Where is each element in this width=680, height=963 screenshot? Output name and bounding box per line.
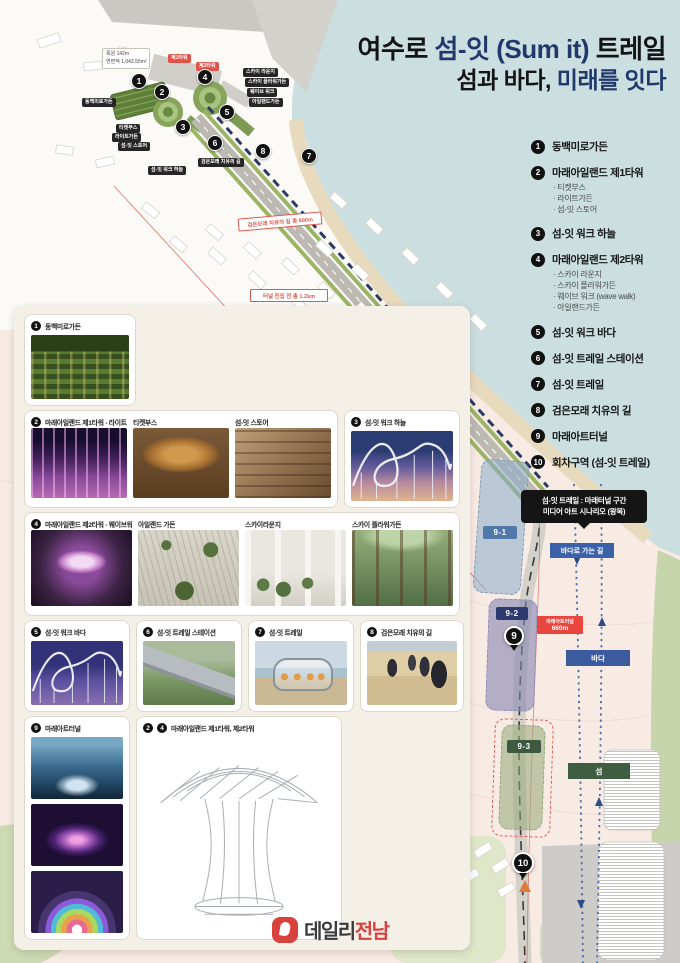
island-label: 섬 — [568, 763, 630, 779]
map-marker-1: 1 — [131, 73, 147, 89]
map-marker-5: 5 — [219, 104, 235, 120]
legend-item-9: 9마래아트터널 — [531, 429, 677, 444]
publisher-name-2: 전남 — [355, 921, 389, 943]
legend-item-2: 2마래아일랜드 제1타워 — [531, 165, 677, 180]
photo-art-tunnel-blue — [31, 737, 123, 799]
photo-art-tunnel-purple — [31, 804, 123, 866]
legend-item-4: 4마래아일랜드 제2타워 — [531, 252, 677, 267]
legend-item-7: 7섬-잇 트레일 — [531, 377, 677, 392]
map-marker-8: 8 — [255, 143, 271, 159]
legend-item-2-subs: · 티켓부스 · 라이트가든 · 섬-잇 스토어 — [553, 183, 677, 215]
poster-title: 여수로 섬-잇 (Sum it) 트레일 섬과 바다, 미래를 잇다 — [358, 33, 666, 94]
card-4: 4마래아일랜드 제2타워 - 웨이브워크 아일랜드 가든 스카이라운지 스카이 … — [24, 512, 460, 616]
cone-marker-icon — [519, 880, 531, 892]
sea-label: 바다 — [566, 650, 630, 666]
card-1: 1동백미로가든 — [24, 314, 136, 406]
title-line2: 섬과 바다, 미래를 잇다 — [358, 66, 666, 95]
card-2: 2마래아일랜드 제1타워 - 라이트가든 티켓부스 섬-잇 스토어 — [24, 410, 338, 508]
tunnel-length-label: 마래아트터널 660m — [537, 616, 583, 634]
card-9: 9마래아트터널 — [24, 716, 130, 940]
card-5: 5섬-잇 워크 바다 — [24, 620, 130, 712]
map-info-box: 폭원 142m 연면적 1,043.55m² — [102, 48, 150, 69]
photo-cards-panel: 1동백미로가든 2마래아일랜드 제1타워 - 라이트가든 티켓부스 섬-잇 스토… — [14, 306, 470, 950]
tunnel-entry-label: 터널 진입 전 총 1.2km — [250, 289, 328, 302]
map-pin-9: 9 — [504, 626, 524, 646]
map-callout: 티켓부스 — [116, 124, 140, 133]
card-3: 3섬-잇 워크 하늘 — [344, 410, 460, 508]
legend-item-6: 6섬-잇 트레일 스테이션 — [531, 351, 677, 366]
poster: 여수로 섬-잇 (Sum it) 트레일 섬과 바다, 미래를 잇다 1동백미로… — [0, 0, 680, 963]
card-8: 8검은모래 치유의 길 — [360, 620, 464, 712]
legend: 1동백미로가든 2마래아일랜드 제1타워 · 티켓부스 · 라이트가든 · 섬-… — [531, 139, 677, 470]
photo-ticket-booth — [133, 428, 229, 498]
map-callout: 스카이 플라워가든 — [245, 78, 289, 87]
map-callout: 스카이 라운지 — [243, 68, 278, 77]
photo-island-garden — [138, 530, 239, 606]
legend-item-4-subs: · 스카이 라운지 · 스카이 플라워가든 · 웨이브 워크 (wave wal… — [553, 270, 677, 313]
card-6: 6섬-잇 트레일 스테이션 — [136, 620, 242, 712]
legend-item-1: 1동백미로가든 — [531, 139, 677, 154]
photo-sum-it-store — [235, 428, 331, 498]
map-callout: 웨이브 워크 — [247, 88, 277, 97]
map-marker-3: 3 — [175, 119, 191, 135]
photo-wave-walk — [31, 530, 132, 606]
media-art-scenario-bubble: 섬-잇 트레일 : 마래터널 구간 미디어 아트 시나리오 (왕복) — [521, 490, 647, 523]
card-towers: 2 4 마래아일랜드 제1타워, 제2타워 — [136, 716, 342, 940]
photo-trail-station — [143, 641, 235, 705]
map-marker-6: 6 — [207, 135, 223, 151]
walk-structure-graphic — [31, 641, 123, 705]
legend-item-8: 8검은모래 치유의 길 — [531, 403, 677, 418]
photo-light-garden — [31, 428, 127, 498]
photo-black-sand-path — [367, 641, 457, 705]
photo-art-tunnel-rainbow — [31, 871, 123, 933]
photo-maze-garden — [31, 335, 129, 399]
card-7: 7섬-잇 트레일 — [248, 620, 354, 712]
segment-9-2-label: 9-2 — [496, 607, 528, 620]
map-callout: 검은모래 치유의 길 — [198, 158, 244, 167]
publisher-name-1: 데일리 — [304, 921, 355, 943]
tower-line-drawing — [143, 737, 335, 933]
photo-walk-sky — [351, 431, 453, 501]
legend-item-5: 5섬-잇 워크 바다 — [531, 325, 677, 340]
map-marker-4: 4 — [197, 69, 213, 85]
segment-9-3-label: 9-3 — [507, 740, 541, 753]
legend-item-3: 3섬-잇 워크 하늘 — [531, 226, 677, 241]
photo-sky-lounge — [245, 530, 346, 606]
publisher-logo: 데일리전남 — [272, 915, 389, 944]
walk-structure-graphic — [351, 431, 453, 501]
to-sea-label: 바다로 가는 길 — [550, 543, 614, 558]
map-callout: 섬-잇 스토어 — [118, 142, 150, 151]
map-callout: 라이트가든 — [112, 133, 141, 142]
publisher-logo-icon — [272, 917, 298, 943]
title-line1: 여수로 섬-잇 (Sum it) 트레일 — [358, 33, 666, 66]
photo-walk-sea — [31, 641, 123, 705]
photo-trail-capsule — [255, 641, 347, 705]
tower-line-drawing-graphic — [146, 739, 332, 931]
legend-item-10: 10회차구역 (섬-잇 트레일) — [531, 455, 677, 470]
segment-9-1-label: 9-1 — [483, 526, 517, 539]
map-marker-2: 2 — [154, 84, 170, 100]
map-callout: 아일랜드가든 — [249, 98, 283, 107]
photo-sky-flower-garden — [352, 530, 453, 606]
map-pin-10: 10 — [512, 852, 534, 874]
map-callout-red: 제1타워 — [168, 54, 191, 63]
map-callout: 섬-잇 워크 하늘 — [148, 166, 186, 175]
map-marker-7: 7 — [301, 148, 317, 164]
map-callout: 동백미로가든 — [82, 98, 116, 107]
